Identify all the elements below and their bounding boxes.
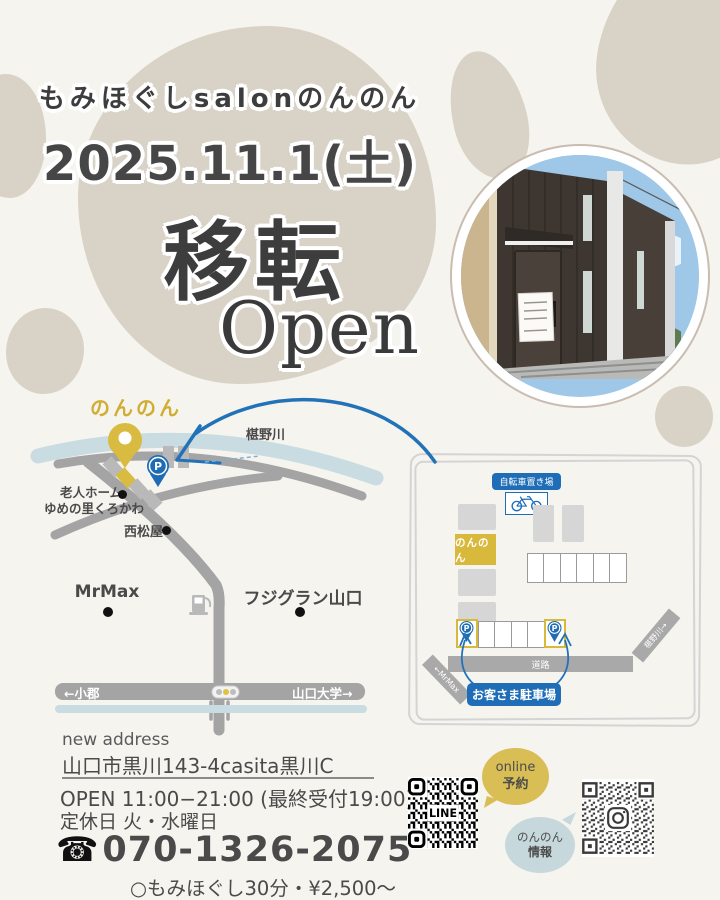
headline-open: Open — [180, 286, 460, 370]
parking-building — [562, 505, 584, 542]
parking-space — [609, 553, 627, 583]
customer-parking-label: お客さま駐車場 — [467, 683, 561, 706]
price-line: ○もみほぐし30分・¥2,500〜 — [130, 872, 396, 900]
parking-diagram: 自転車置き場 のんのん P P 道路 — [405, 450, 705, 730]
event-date: 2025.11.1(土) — [20, 124, 440, 194]
new-address-label: new address — [62, 730, 169, 750]
map-nursing-home-dot — [118, 490, 127, 499]
shop-info-bubble: のんのん 情報 — [505, 817, 575, 873]
line-qr-label: LINE — [429, 807, 457, 820]
parking-space — [576, 553, 594, 583]
salon-name: もみほぐしsalonのんのん — [20, 78, 440, 115]
parking-building — [458, 504, 496, 530]
phone-icon: ☎ — [56, 830, 98, 870]
line-qr-code: LINE — [408, 777, 478, 849]
map-fujigran-label: フジグラン山口 — [233, 584, 373, 609]
map-dir-right: 山口大学→ — [292, 683, 352, 702]
gas-station-icon — [189, 595, 210, 615]
background-blob-left — [6, 308, 84, 394]
flyer: もみほぐしsalonのんのん 2025.11.1(土) 移転 Open — [0, 0, 720, 900]
parking-building — [458, 569, 496, 596]
parking-space — [560, 553, 578, 583]
parking-shop-block: のんのん — [455, 534, 496, 565]
storefront-photo — [452, 146, 708, 406]
address: 山口市黒川143-4casita黒川C — [62, 750, 333, 779]
online-booking-bubble: online 予約 — [482, 748, 549, 805]
phone-number: 070-1326-2075 — [102, 830, 412, 870]
location-arrow — [150, 372, 450, 480]
background-blob-right — [655, 386, 713, 447]
address-underline — [62, 777, 374, 779]
map-dir-left: ←小郡 — [64, 683, 99, 702]
instagram-qr-code — [582, 779, 654, 857]
parking-building — [533, 505, 554, 542]
map-nishimatsuya-label: 西松屋 — [124, 521, 163, 540]
parking-spaces-middle — [528, 553, 627, 583]
map-mrmax-label: MrMax — [67, 582, 147, 602]
map-nursing-home-line2: ゆめの里くろかわ — [44, 498, 144, 517]
parking-space — [543, 553, 561, 583]
online-booking-line2: 予約 — [502, 777, 528, 793]
map-fujigran-dot — [295, 607, 305, 617]
customer-parking-text: お客さま駐車場 — [472, 686, 556, 703]
map-nishimatsuya-dot — [162, 526, 171, 535]
parking-space — [593, 553, 611, 583]
bicycle-parking-text: 自転車置き場 — [499, 475, 553, 488]
instagram-qr-art — [582, 779, 654, 857]
parking-space — [527, 553, 545, 583]
line-qr-art: LINE — [408, 777, 478, 849]
parking-shop-text: のんのん — [455, 535, 496, 565]
phone-row: ☎ 070-1326-2075 — [56, 830, 412, 870]
info-bubble-tail — [562, 812, 576, 825]
shop-info-line2: 情報 — [528, 845, 552, 860]
online-booking-line1: online — [496, 760, 536, 776]
bicycle-parking-label: 自転車置き場 — [492, 473, 561, 490]
storefront-photo-art — [461, 155, 681, 379]
shop-info-line1: のんのん — [517, 830, 563, 844]
map-mrmax-dot — [103, 607, 113, 617]
